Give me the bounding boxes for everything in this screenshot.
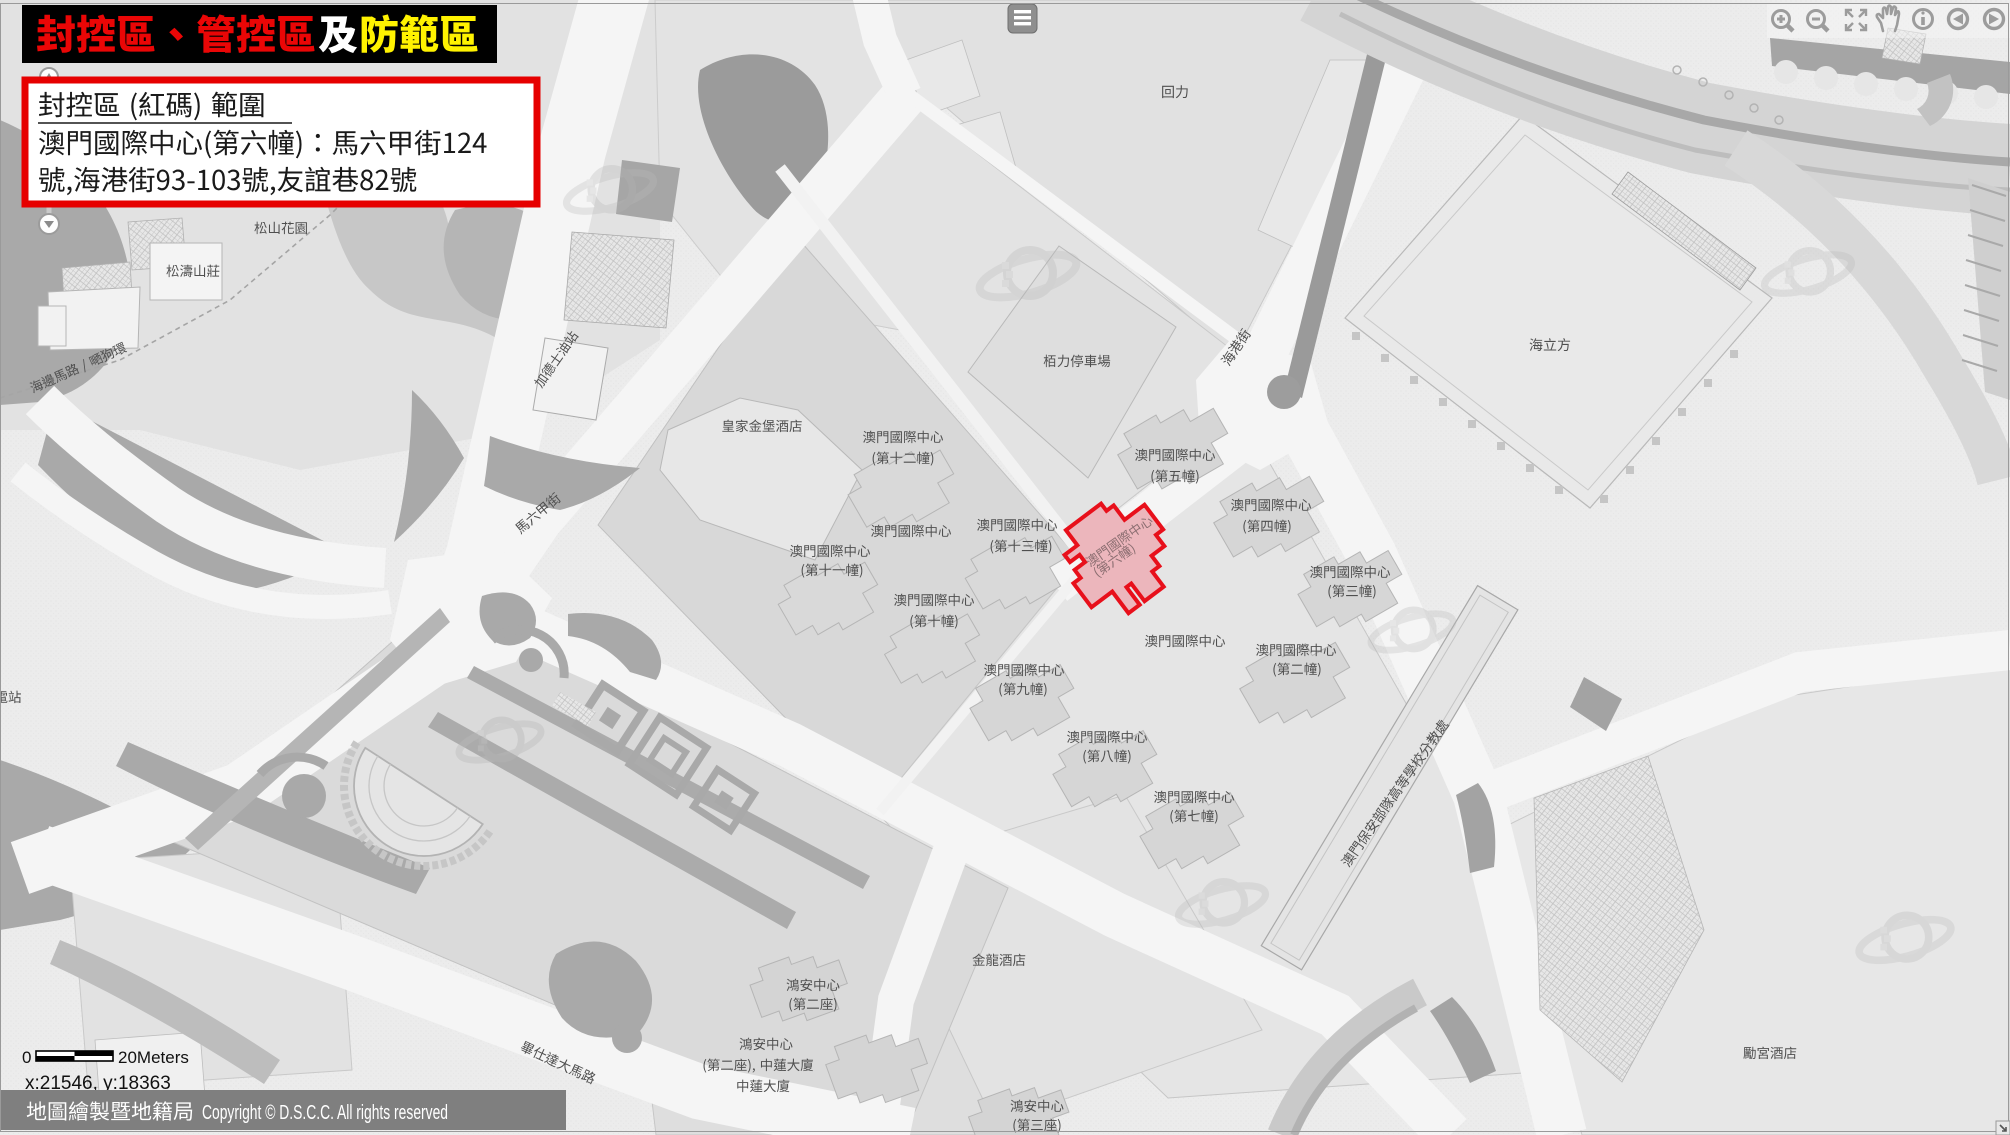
svg-text:20Meters: 20Meters	[118, 1048, 189, 1067]
svg-text:0: 0	[22, 1048, 31, 1067]
svg-text:Copyright © D.S.C.C. All right: Copyright © D.S.C.C. All rights reserved	[202, 1102, 448, 1124]
